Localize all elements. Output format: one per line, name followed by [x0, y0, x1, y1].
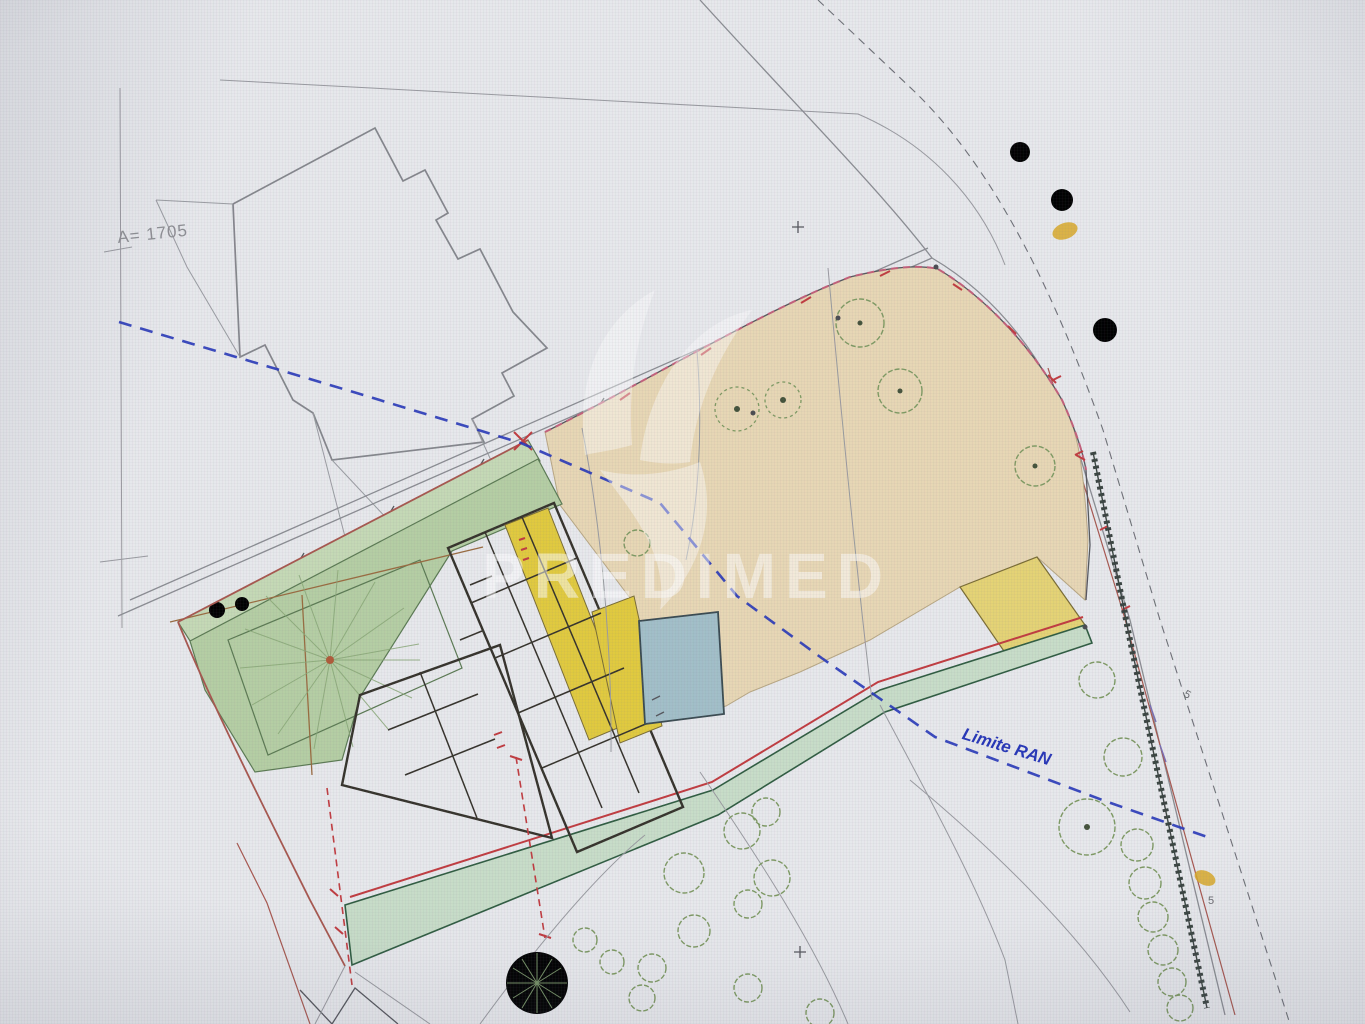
watermark-text: PREDIMED: [482, 540, 892, 612]
pool: [639, 612, 724, 724]
detailed-tree: [506, 952, 568, 1014]
site-plan-photo: A= 1705 Limite RAN 5 5 PREDIMED: [0, 0, 1365, 1024]
site-plan-drawing: A= 1705 Limite RAN 5 5 PREDIMED: [0, 0, 1365, 1024]
dim-label-5b: 5: [1208, 895, 1214, 907]
